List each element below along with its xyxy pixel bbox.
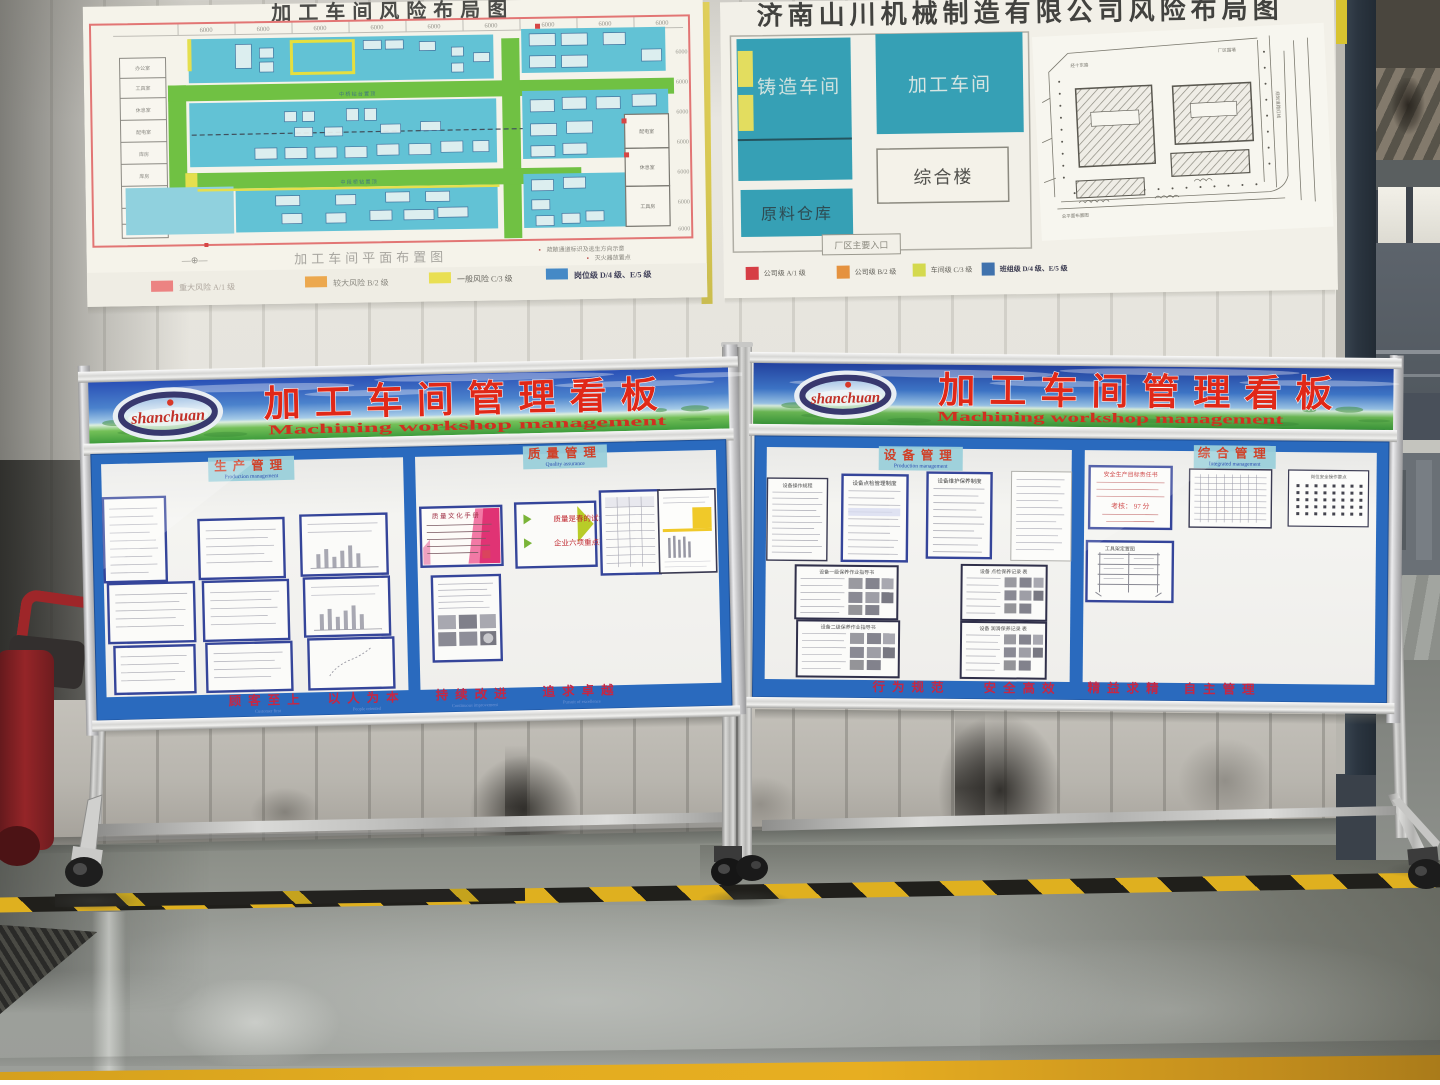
svg-text:质量管理: 质量管理	[528, 445, 602, 462]
svg-text:精益求精: 精益求精	[1087, 680, 1165, 696]
svg-text:顾客至上: 顾客至上	[229, 692, 307, 709]
svg-text:Pursuit of excellence: Pursuit of excellence	[563, 699, 601, 705]
svg-text:以人为本: 以人为本	[327, 689, 405, 706]
svg-text:设备管理: 设备管理	[884, 447, 958, 463]
svg-text:持续改进: 持续改进	[435, 686, 513, 703]
svg-text:People oriented: People oriented	[353, 706, 382, 712]
svg-text:追求卓越: 追求卓越	[542, 682, 620, 699]
svg-text:shanchuan: shanchuan	[810, 390, 881, 408]
svg-text:安全高效: 安全高效	[983, 680, 1061, 696]
svg-text:Customer first: Customer first	[255, 708, 282, 714]
svg-text:Integrated management: Integrated management	[1209, 461, 1261, 468]
svg-text:行为规范: 行为规范	[871, 679, 950, 695]
svg-text:Quality assurance: Quality assurance	[546, 461, 586, 468]
svg-text:Production management: Production management	[894, 463, 948, 470]
svg-text:自主管理: 自主管理	[1183, 681, 1261, 697]
